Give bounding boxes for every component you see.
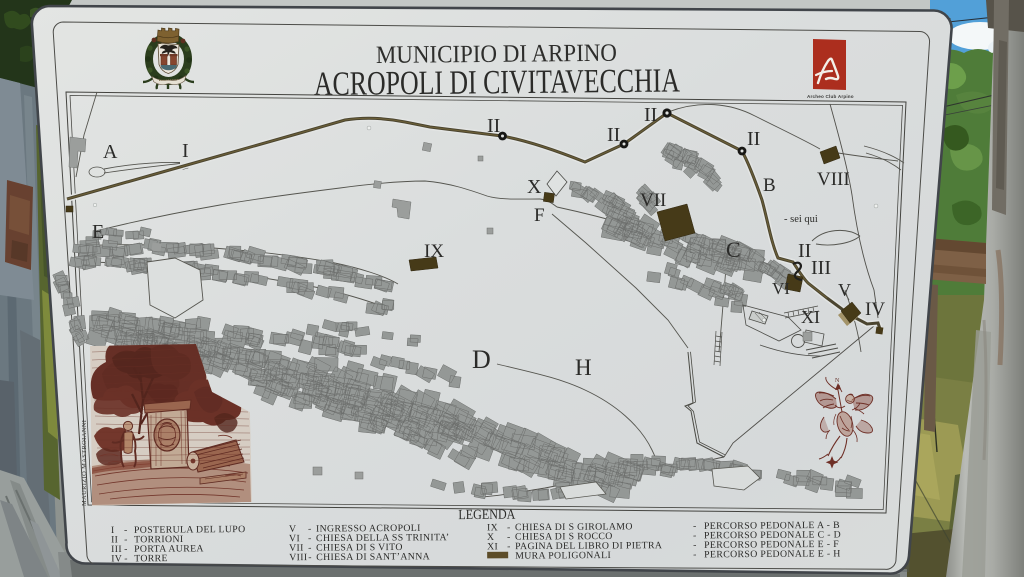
svg-text:VI: VI xyxy=(772,279,790,298)
svg-text:II: II xyxy=(644,104,657,126)
svg-text:F: F xyxy=(534,205,545,226)
svg-text:PERCORSO PEDONALE E - H: PERCORSO PEDONALE E - H xyxy=(704,548,841,560)
svg-text:D: D xyxy=(472,345,491,374)
svg-text:IV: IV xyxy=(865,299,885,320)
svg-text:H: H xyxy=(575,355,592,380)
svg-text:-: - xyxy=(124,553,128,564)
svg-text:C: C xyxy=(726,237,741,262)
svg-text:II: II xyxy=(607,124,620,146)
svg-text:VII: VII xyxy=(640,190,666,211)
svg-text:MAURIZIO MASTROIANNI: MAURIZIO MASTROIANNI xyxy=(81,420,88,506)
svg-text:II: II xyxy=(487,115,500,137)
svg-text:XI: XI xyxy=(487,541,498,552)
svg-text:B: B xyxy=(763,175,776,196)
svg-text:- sei qui: - sei qui xyxy=(784,214,818,225)
svg-text:N: N xyxy=(835,378,840,384)
svg-text:I: I xyxy=(182,140,189,162)
svg-text:-: - xyxy=(693,549,697,560)
svg-text:CHIESA DI SANT’ANNA: CHIESA DI SANT’ANNA xyxy=(316,551,430,563)
svg-text:A: A xyxy=(103,141,118,163)
svg-text:-: - xyxy=(507,541,511,552)
svg-text:E: E xyxy=(92,221,104,243)
svg-text:X: X xyxy=(527,176,542,198)
svg-text:IX: IX xyxy=(424,241,444,262)
svg-text:II: II xyxy=(798,240,811,262)
svg-text:TORRE: TORRE xyxy=(134,553,168,564)
svg-text:-: - xyxy=(308,552,312,563)
svg-text:II: II xyxy=(747,128,760,150)
svg-text:Archeo Club Arpino: Archeo Club Arpino xyxy=(807,94,854,99)
svg-text:MURA POLIGONALI: MURA POLIGONALI xyxy=(515,550,611,562)
svg-text:V: V xyxy=(838,280,851,300)
svg-text:XI: XI xyxy=(801,307,820,327)
svg-text:IV: IV xyxy=(111,553,122,564)
svg-text:VIII: VIII xyxy=(289,552,307,563)
svg-text:LEGENDA: LEGENDA xyxy=(458,508,516,523)
svg-text:VIII: VIII xyxy=(817,169,850,190)
svg-text:III: III xyxy=(811,257,831,279)
